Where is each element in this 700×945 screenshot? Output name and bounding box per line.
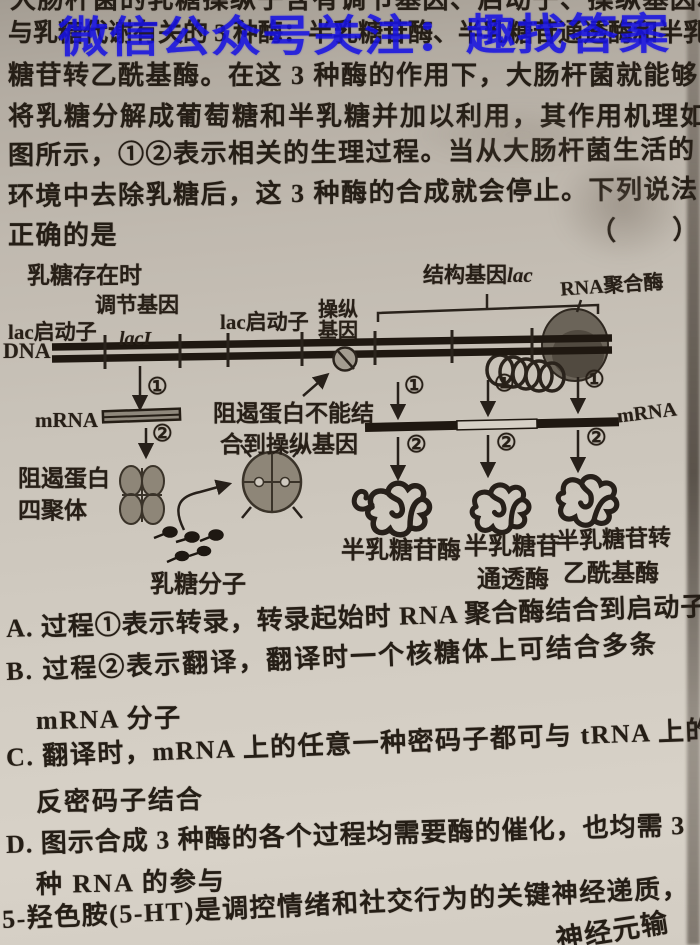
paper-stain: [410, 105, 630, 165]
enzyme2-label-line2: 通透酶: [477, 559, 549, 594]
repressor-note-line1: 阻遏蛋白不能结: [213, 394, 374, 428]
step1-circle-3: ①: [584, 367, 605, 393]
structural-gene-label: 结构基因lac: [423, 259, 533, 289]
mrna-bar-right: [365, 417, 619, 432]
repressor-label-line2: 四聚体: [18, 491, 87, 525]
condition-label: 乳糖存在时: [27, 256, 142, 290]
enzyme3-label-line2: 乙酰基酶: [563, 553, 659, 588]
option-d-text: 图示合成 3 种酶的各个过程均需要酶的催化，也均需 3: [40, 811, 685, 858]
step2-circle-left: ②: [152, 421, 173, 447]
page-edge-shadow: [687, 0, 700, 945]
exam-page-photo: 大肠杆菌的乳糖操纵子含有调节基因、启动子、操纵基因和 与乳糖代谢有关的 3 种酶…: [0, 0, 700, 945]
step2-circle-1: ②: [406, 432, 427, 458]
step1-circle-left: ①: [147, 374, 168, 400]
option-a-label: A.: [6, 613, 34, 643]
repressor-label-line1: 阻遏蛋白: [18, 459, 110, 493]
intro-line-7: 正确的是: [8, 215, 118, 252]
regulatory-gene-label: 调节基因: [95, 289, 179, 319]
option-d-label: D.: [6, 829, 34, 859]
step1-circle-2: ①: [494, 371, 515, 397]
laci-gene-label: lacI: [119, 328, 151, 351]
option-c-label: C.: [6, 742, 35, 772]
enzyme-squiggle-galactosidase: [354, 483, 429, 535]
enzyme1-label: 半乳糖苷酶: [341, 530, 461, 565]
step2-circle-3: ②: [586, 425, 607, 451]
paper-stain: [555, 148, 690, 263]
lactose-dots: [154, 528, 223, 563]
watermark-text: 微信公众号关注：趣找答案: [58, 0, 670, 65]
repressor-tetramer-shape: [120, 466, 164, 524]
lactose-label: 乳糖分子: [150, 564, 246, 599]
repressor-note-line2: 合到操纵基因: [220, 425, 358, 459]
promoter-mid-label: lac启动子: [220, 306, 309, 336]
operator-label-line2: 基因: [318, 314, 358, 343]
step1-circle-1: ①: [404, 373, 425, 399]
option-c-line2: 反密码子结合: [36, 779, 205, 819]
enzyme3-label-line1: 半乳糖苷转: [555, 518, 671, 556]
option-b-label: B.: [5, 656, 34, 686]
lactose-binding-arrow: [178, 484, 229, 530]
enzyme2-label-line1: 半乳糖苷: [464, 526, 560, 561]
blocked-repressor-icon: [334, 348, 357, 371]
mrna-left-label: mRNA: [35, 408, 98, 433]
note-arrow: [303, 375, 327, 396]
dna-label: DNA: [3, 338, 51, 364]
step2-circle-2: ②: [496, 430, 517, 456]
